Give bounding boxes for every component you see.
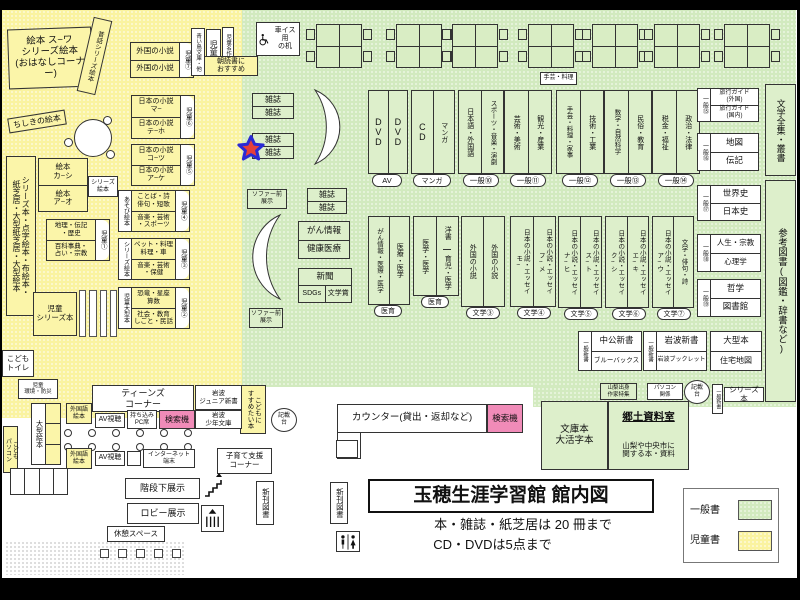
wheelchair-desk-label: 車イス用 の机 xyxy=(272,27,298,51)
sofa-crescent xyxy=(312,88,344,166)
shelf-label: 技術・工業 xyxy=(580,91,604,173)
shelf-label: 日本語・外国語 xyxy=(459,91,481,173)
shelf-label: 日本史 xyxy=(711,203,760,221)
search-terminal[interactable]: 検索機 xyxy=(159,410,195,429)
shelf-label: スポーツ・音楽・演劇 xyxy=(481,91,504,173)
series-books-label: シリーズ本 xyxy=(724,387,764,402)
top-frame-bar xyxy=(0,0,800,10)
shelf-label: 医学・医学 xyxy=(414,217,436,295)
chair-icon xyxy=(306,29,315,40)
side-label: 児童大型本 xyxy=(119,288,132,328)
borrowing-rule-cd-dvd: CD・DVDは5点まで xyxy=(385,536,600,554)
chair-icon xyxy=(184,429,192,437)
chair-icon xyxy=(499,51,508,62)
chair-icon xyxy=(172,549,181,558)
shelf-label: 音楽・芸術 ・保健 xyxy=(132,259,175,280)
internet-terminal[interactable]: インターネット 端末 xyxy=(143,449,195,468)
left-frame-bar xyxy=(0,0,2,600)
chair-icon xyxy=(64,138,73,147)
sofa-crescent xyxy=(251,213,283,301)
new-books-shelf: 新刊図書 xyxy=(330,482,348,524)
shelf-label: ペット・料理 料理・車 xyxy=(132,239,175,259)
magazine-shelf: 雑誌雑誌 xyxy=(252,93,294,119)
local-history-room-title: 郷土資料室 xyxy=(609,402,688,432)
shelf-label: 文学・俳句・詩 xyxy=(673,217,694,307)
legend-general-label: 一般書 xyxy=(690,505,720,517)
kids-shelf-jp-novels-ma: 日本の小説 マ~日本の小説 テ~ホ 児童⑥ xyxy=(131,95,195,139)
shelf-label: 税金・福祉 xyxy=(653,91,676,173)
kids-shelf-pets-cooking: シリーズ絵本 ペット・料理 料理・車音楽・芸術 ・保健 児童③ xyxy=(118,238,190,280)
chair-icon xyxy=(103,116,112,125)
series-picture-book-label: シリーズ 絵本 xyxy=(88,176,118,197)
shelf-label: 日本の小説・エッセイ ア~ウ xyxy=(653,217,673,307)
shelf-label: 観光・産業 xyxy=(528,91,552,173)
kids-series-books-shelf: 児童 シリーズ本 xyxy=(33,292,77,336)
chair-icon xyxy=(100,549,109,558)
shelf-label: 旅行ガイド (外国) xyxy=(711,89,758,105)
shelf-label: 百科事典・ 占い・宗教 xyxy=(47,240,95,261)
general-shelf-11: 芸術・美術観光・産業 xyxy=(504,90,552,174)
aoitori-bunko-shelf: 青い鳥文庫・他 xyxy=(191,28,205,76)
chair-icon xyxy=(701,29,710,40)
legend-children-label: 児童書 xyxy=(690,535,720,547)
general-shelf-14: 税金・福祉政治・法律 xyxy=(652,90,700,174)
iwanami-junior-shinsho-shelf: 岩波 ジュニア新書 xyxy=(195,385,242,410)
lending-counter: カウンター(貸出・返却など) xyxy=(337,404,487,433)
shelf-label: 健康医療 xyxy=(299,240,349,259)
shelf-label: 洋書 xyxy=(443,217,451,249)
shelf-label: 社会・教育 しごと・民話 xyxy=(132,308,175,329)
shelf-label: 世界史 xyxy=(711,186,760,203)
chair-icon xyxy=(771,29,780,40)
star-marker-icon xyxy=(236,134,266,164)
general-16-badge: 一般⑯ xyxy=(698,134,711,170)
general-13-badge: 一般⑬ xyxy=(610,174,646,187)
shelf-label: 新聞 xyxy=(299,269,351,285)
shelf-label: 中公新書 xyxy=(592,332,641,351)
general-17-badge: 一般⑰ xyxy=(698,186,711,220)
legend-row-general: 一般書 xyxy=(690,500,772,520)
shelf-number-badge: 児童⑤ xyxy=(180,145,194,185)
shelf-label: マンガ xyxy=(433,91,455,173)
shelf-label: 雑誌 xyxy=(253,106,293,119)
bookshelf-slats xyxy=(79,290,117,337)
shelf-label: 図書館 xyxy=(711,298,760,317)
teens-corner: ティーンズ コーナー xyxy=(92,385,194,412)
side-label: シリーズ絵本 xyxy=(119,239,132,279)
shelf-label: 外国の小説 xyxy=(483,217,505,306)
shelf-cell xyxy=(46,404,60,423)
childcare-support-corner: 子育て支援 コーナー xyxy=(217,448,272,474)
shelf-label: 日本の小説・エッセイ フ~メ xyxy=(533,217,556,306)
side-label: あそび絵本 xyxy=(119,191,132,231)
literature-shelf-6: 日本の小説・エッセイ ク~シ日本の小説・エッセイ エ~キ xyxy=(605,216,649,308)
chair-icon xyxy=(112,443,120,451)
chair-icon xyxy=(363,29,372,40)
shelf-number-badge: 児童③ xyxy=(175,239,189,279)
borrowing-rule-books: 本・雑誌・紙芝居は 20 冊まで xyxy=(392,516,654,534)
av-badge: AV xyxy=(372,174,402,187)
chair-icon xyxy=(582,51,591,62)
map-title: 玉穂生涯学習館 館内図 xyxy=(368,479,654,513)
large-books-shelf: 大型本住宅地図 xyxy=(710,331,762,371)
general-11-badge: 一般⑪ xyxy=(510,174,546,187)
chair-icon xyxy=(499,29,508,40)
av-viewing-seat[interactable]: AV視聴 xyxy=(95,451,125,466)
general-10-badge: 一般⑩ xyxy=(463,174,499,187)
kids-tall-shelf-braille-kamishibai: シリーズ本・点字絵本・布絵本・ 紙芝居・大型紙芝居・大型絵本 xyxy=(6,156,36,316)
shelf-label: 日本の小説 マ~ xyxy=(132,96,180,117)
chair-icon xyxy=(644,51,653,62)
shelf-label: 岩波ブックレット xyxy=(657,351,706,371)
bench xyxy=(10,468,68,495)
library-floor-map: 絵本 ス~ワ シリーズ絵本 (おはなしコーナー) 昔話シリーズ絵本 ちしきの絵本… xyxy=(0,0,800,600)
literature-7-badge: 文学⑦ xyxy=(657,308,691,320)
shelf-label: 絵本 ア~オ xyxy=(39,185,87,212)
life-religion-shelf: 一般⑱ 人生・宗教心理学 xyxy=(697,234,761,272)
chair-icon xyxy=(442,51,451,62)
shelf-label: 大型絵本 xyxy=(32,404,46,464)
kids-shelf-dinosaur-society: 児童大型本 恐竜・星座 算数社会・教育 しごと・民話 児童② xyxy=(118,287,190,329)
chair-icon xyxy=(112,429,120,437)
literature-6-badge: 文学⑥ xyxy=(612,308,646,320)
shinsho-badge: 一般新書 xyxy=(712,384,723,414)
shelf-label: 育児・医学 xyxy=(443,249,451,295)
shelf-label: 外国の小説 xyxy=(462,217,483,306)
chair-icon xyxy=(644,29,653,40)
shinsho-badge: 一般新書 xyxy=(579,332,592,370)
rest-space-label: 休憩スペース xyxy=(107,526,165,542)
newspaper-shelf: 新聞 SDGs文学賞 xyxy=(298,268,352,303)
medical-shelf-1: がん情報・医療・医学医療・医学 xyxy=(368,216,410,305)
chair-icon xyxy=(386,29,395,40)
general-shelf-12: 手芸・料理・家事技術・工業 xyxy=(556,90,604,174)
handicraft-cooking-label: 手芸・料理 xyxy=(540,72,577,85)
chuko-shinsho-shelf: 一般新書 中公新書ブルーバックス xyxy=(578,331,642,371)
shelf-label: 日本の小説 テ~ホ xyxy=(132,117,180,139)
under-stairs-display: 階段下展示 xyxy=(125,478,200,499)
kids-pc-label: こども パソコン xyxy=(3,426,18,473)
kids-shelf-foreign-novels: 外国の小説外国の小説 児童⑦ xyxy=(130,42,194,78)
shelf-label: 日本の小説・エッセイ エ~キ xyxy=(627,217,649,307)
chair-icon xyxy=(582,29,591,40)
kids-toilet-label: こども トイレ xyxy=(2,350,34,377)
shelf-label: がん情報・医療・医学 xyxy=(369,217,389,304)
chair-icon xyxy=(64,429,72,437)
chair-icon xyxy=(118,549,127,558)
foreign-picture-books-label: 外国語 絵本 xyxy=(66,403,92,424)
pc-related-label: パソコン 関係 xyxy=(647,383,683,400)
shelf-label: 外国の小説 xyxy=(131,60,179,78)
chair-icon xyxy=(771,51,780,62)
travel-guide-shelf: 一般⑮ 旅行ガイド (外国)旅行ガイド (国内) xyxy=(697,88,759,122)
shelf-label: 雑誌 xyxy=(308,201,346,214)
shelf-label: 哲学 xyxy=(711,280,760,298)
legend-children-swatch xyxy=(738,531,772,551)
legend: 一般書 児童書 xyxy=(683,488,779,563)
kids-shelf-geography: 地理・伝記 ・歴史百科事典・ 占い・宗教 児童① xyxy=(46,219,110,261)
shelf-cell xyxy=(46,444,60,464)
iwanami-shinsho-shelf: 一般新書 岩波新書岩波ブックレット xyxy=(643,331,707,371)
shelf-number-badge: 児童② xyxy=(175,288,189,328)
wheelchair-desk: 車イス用 の机 xyxy=(256,22,300,56)
general-15-badge: 一般⑮ xyxy=(698,89,711,121)
chair-icon xyxy=(518,51,527,62)
medical-badge: 医育 xyxy=(374,305,402,317)
study-table xyxy=(528,24,574,68)
new-books-shelf: 新刊図書 xyxy=(256,481,274,525)
chair-icon xyxy=(106,150,115,159)
chair-icon xyxy=(386,51,395,62)
stairs-icon xyxy=(203,472,223,498)
bottom-frame-bar xyxy=(0,578,800,600)
shelf-label: 地図 xyxy=(711,134,758,152)
map-biography-shelf: 一般⑯ 地図伝記 xyxy=(697,133,759,171)
literature-4-badge: 文学④ xyxy=(517,307,551,319)
general-shelf-10: 日本語・外国語スポーツ・音楽・演劇 xyxy=(458,90,504,174)
shelf-label: 岩波新書 xyxy=(657,332,706,351)
history-shelf: 一般⑰ 世界史日本史 xyxy=(697,185,761,221)
legend-general-swatch xyxy=(738,500,772,520)
chair-icon xyxy=(160,429,168,437)
shelf-label: ことば・詩 俳句・短歌 xyxy=(132,191,175,211)
general-14-badge: 一般⑭ xyxy=(658,174,694,187)
bunko-large-print-shelf: 文庫本 大活字本 xyxy=(541,401,608,470)
chair-icon xyxy=(363,51,372,62)
shelf-label: DVD xyxy=(388,91,408,173)
magazine-shelf: 雑誌雑誌 xyxy=(307,188,347,214)
yamanashi-authors-label: 山梨出身 作家特集 xyxy=(600,383,637,400)
general-12-badge: 一般⑫ xyxy=(562,174,598,187)
shelf-label: がん情報 xyxy=(299,222,349,240)
chair-icon xyxy=(714,29,723,40)
shelf-cell xyxy=(46,423,60,443)
seat-box xyxy=(127,451,141,466)
general-19-badge: 一般⑲ xyxy=(698,280,711,316)
manga-badge: マンガ xyxy=(413,174,451,187)
general-shelf-13: 数学・自然科学民俗・教育 xyxy=(604,90,652,174)
study-table xyxy=(654,24,700,68)
study-table xyxy=(316,24,362,68)
cancer-info-health-shelf: がん情報健康医療 xyxy=(298,221,350,259)
rest-space-area xyxy=(5,541,185,575)
chair-icon xyxy=(701,51,710,62)
shelf-label: 日本の小説・エッセイ モ~ xyxy=(511,217,533,306)
recommended-for-kids-label: こどもに すすめたい本 xyxy=(240,385,266,434)
shelf-label: 地理・伝記 ・歴史 xyxy=(47,220,95,240)
shelf-label: 日本の小説・エッセイ ス~ト xyxy=(580,217,602,307)
sdgs-label: SDGs xyxy=(299,286,325,302)
shelf-label: DVD xyxy=(369,91,388,173)
study-table xyxy=(396,24,442,68)
literature-5-badge: 文学⑤ xyxy=(564,308,598,320)
shelf-label: 日本の小説・エッセイ ク~シ xyxy=(606,217,627,307)
sofa-front-display-label: ソファー前 展示 xyxy=(247,189,287,209)
shelf-label: 絵本 カ~シ xyxy=(39,159,87,185)
foreign-picture-books-label: 外国語 絵本 xyxy=(66,448,92,469)
medical-badge: 医育 xyxy=(421,296,449,308)
kids-shelf-words-poetry: あそび絵本 ことば・詩 俳句・短歌音楽・芸術 ・スポーツ 児童④ xyxy=(118,190,190,232)
big-picture-books-shelf: 大型絵本 xyxy=(31,403,61,465)
lobby-display: ロビー展示 xyxy=(127,503,199,524)
shelf-column: 洋書 育児・医学 xyxy=(436,217,459,295)
shelf-label: 民俗・教育 xyxy=(628,91,652,173)
shelf-label: 政治・法律 xyxy=(676,91,700,173)
elevator-icon xyxy=(201,505,224,532)
study-table xyxy=(592,24,638,68)
literature-shelf-4: 日本の小説・エッセイ モ~日本の小説・エッセイ フ~メ xyxy=(510,216,556,307)
chair-icon xyxy=(154,549,163,558)
shelf-label: 雑誌 xyxy=(253,94,293,106)
av-viewing-seat[interactable]: AV視聴 xyxy=(95,413,125,428)
shelf-label: 数学・自然科学 xyxy=(605,91,628,173)
chair-icon xyxy=(306,51,315,62)
study-table xyxy=(452,24,498,68)
shelf-label: 伝記 xyxy=(711,152,758,171)
reference-books-shelf: 参考図書(図鑑・辞書など) xyxy=(765,180,796,402)
literature-shelf-5: 日本の小説・エッセイ ナ~ヒ日本の小説・エッセイ ス~ト xyxy=(558,216,602,308)
shelf-label: 恐竜・星座 算数 xyxy=(132,288,175,308)
shelf-label: 日本の小説・エッセイ ナ~ヒ xyxy=(559,217,580,307)
shelf-label: 心理学 xyxy=(711,253,760,272)
shelf-label: 日本の小説 コ~ツ xyxy=(132,145,180,165)
cd-manga-shelf: CDマンガ xyxy=(411,90,455,174)
shelf-number-badge: 児童① xyxy=(95,220,109,260)
kids-shelf-picture-books: 絵本 カ~シ 絵本 ア~オ xyxy=(38,158,88,212)
chair-icon xyxy=(136,549,145,558)
general-18-badge: 一般⑱ xyxy=(698,235,711,271)
literature-shelf-3: 外国の小説外国の小説 xyxy=(461,216,505,307)
literature-3-badge: 文学③ xyxy=(466,307,500,319)
legend-row-children: 児童書 xyxy=(690,531,772,551)
shelf-number-badge: 児童④ xyxy=(175,191,189,231)
iwanami-shonen-bunko-shelf: 岩波 少年文庫 xyxy=(195,410,242,429)
shelf-label: 住宅地図 xyxy=(711,351,761,371)
sofa-front-display-label: ソファー前 展示 xyxy=(249,308,283,328)
search-terminal[interactable]: 検索機 xyxy=(487,404,523,433)
literary-prize-label: 文学賞 xyxy=(325,286,352,302)
literature-anthology-shelf: 文学全集・叢書 xyxy=(765,84,796,176)
literature-shelf-7: 日本の小説・エッセイ ア~ウ文学・俳句・詩 xyxy=(652,216,694,308)
toilet-icon xyxy=(336,531,360,552)
shelf-label: 外国の小説 xyxy=(131,43,179,60)
writing-desk-label: 記載 台 xyxy=(271,408,297,432)
local-history-room: 郷土資料室 山梨や中央市に 関する本・資料 xyxy=(608,401,689,470)
study-table xyxy=(724,24,770,68)
shelf-label: 旅行ガイド (国内) xyxy=(711,105,758,122)
chair-icon xyxy=(714,51,723,62)
philosophy-shelf: 一般⑲ 哲学図書館 xyxy=(697,279,761,317)
shelf-label: CD xyxy=(412,91,433,173)
shelf-label: 手芸・料理・家事 xyxy=(557,91,580,173)
chair-icon xyxy=(136,429,144,437)
shelf-label: 大型本 xyxy=(711,332,761,351)
shelf-label: 雑誌 xyxy=(308,189,346,201)
shelf-number-badge: 児童⑥ xyxy=(180,96,194,138)
shelf-label: 芸術・美術 xyxy=(505,91,528,173)
shelf-label: 日本の小説 ア~ケ xyxy=(132,165,180,186)
shelf-label: 人生・宗教 xyxy=(711,235,760,253)
morning-reading-recommendation-label: 朝読書に おすすめ xyxy=(204,56,258,76)
chair-icon xyxy=(518,29,527,40)
chair-icon xyxy=(88,429,96,437)
kids-shelf-jp-novels-a: 日本の小説 コ~ツ日本の小説 ア~ケ 児童⑤ xyxy=(131,144,195,186)
shelf-label: ブルーバックス xyxy=(592,351,641,371)
shelf-label: 音楽・芸術 ・スポーツ xyxy=(132,211,175,232)
chair-icon xyxy=(442,29,451,40)
medical-shelf-2: 医学・医学 洋書 育児・医学 xyxy=(413,216,459,296)
kids-environment-disaster-shelf: 児童 環境・防災 xyxy=(18,379,58,399)
shelf-label: 医療・医学 xyxy=(389,217,410,304)
shinsho-badge: 一般新書 xyxy=(644,332,657,370)
byod-pc-seat[interactable]: 持ち込み PC席 xyxy=(127,410,157,429)
wheelchair-icon xyxy=(258,33,270,46)
dvd-shelf: DVDDVD xyxy=(368,90,408,174)
local-history-room-desc: 山梨や中央市に 関する本・資料 xyxy=(609,432,688,469)
display-box xyxy=(336,440,358,458)
